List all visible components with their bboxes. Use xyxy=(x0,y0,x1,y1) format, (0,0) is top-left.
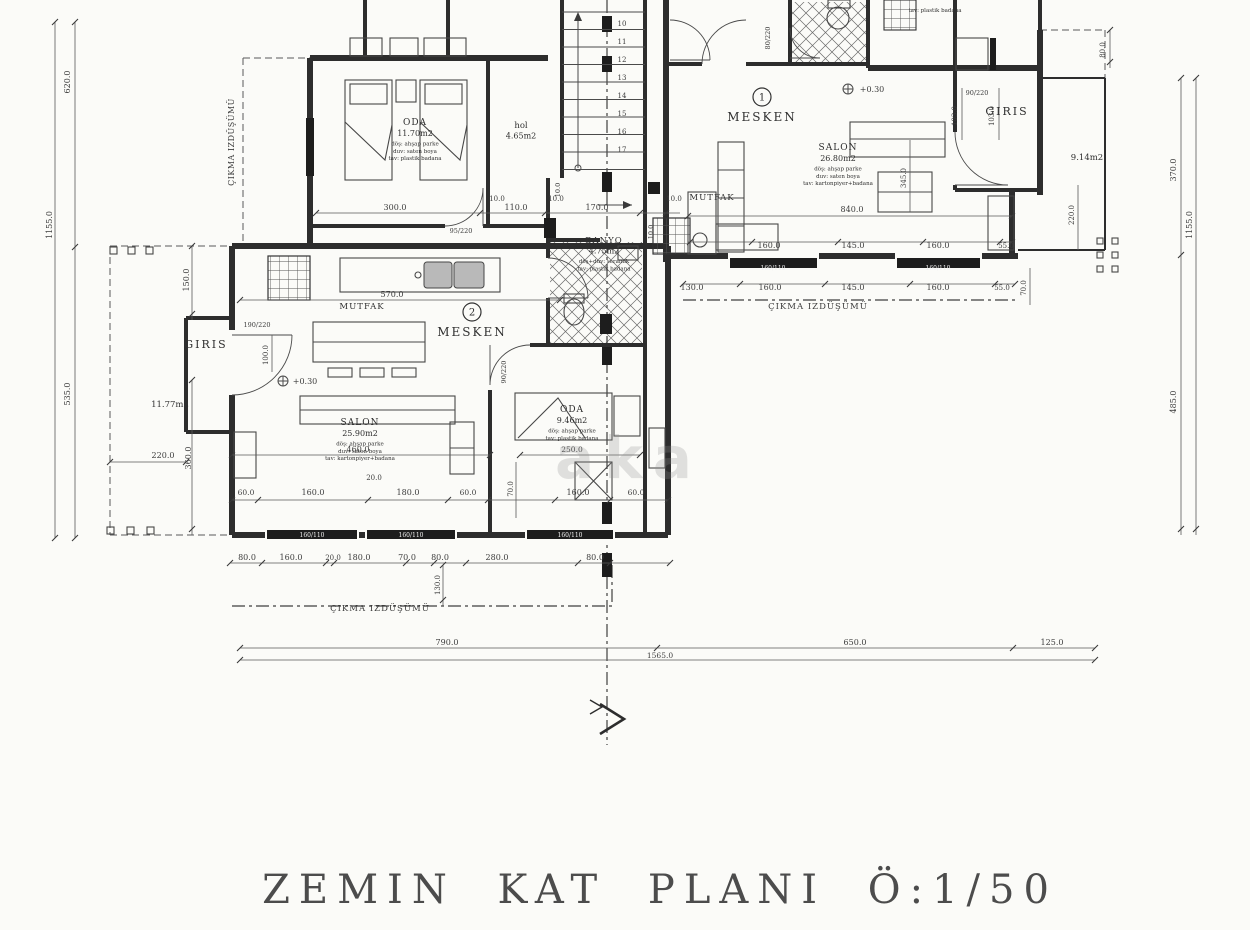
room-label: GIRIS xyxy=(184,338,227,351)
stair-number: 15 xyxy=(618,110,627,118)
window-bar xyxy=(306,118,314,176)
dim-label: 145.0 xyxy=(842,241,865,250)
dim-label: 20.0 xyxy=(325,554,341,562)
room-label: döş: ahşap parke xyxy=(336,442,383,448)
dim-label: 160.0 xyxy=(759,283,782,292)
dim-label: 485.0 xyxy=(1169,391,1178,414)
dim-label: 535.0 xyxy=(63,383,72,406)
dim-label: 220.0 xyxy=(1068,205,1076,225)
stair-number: 17 xyxy=(618,146,627,154)
room-label: hol xyxy=(514,121,528,131)
dim-label: ÇIKMA IZDÜŞÜMÜ xyxy=(768,300,868,312)
room-label: SALON xyxy=(819,143,858,153)
room-label: 11.70m2 xyxy=(397,129,433,138)
dim-label: 10.0 xyxy=(489,195,505,203)
dim-label: 90/220 xyxy=(966,89,989,97)
dim-label: 125.0 xyxy=(1041,638,1064,647)
room-label: döş: ahşap parke xyxy=(814,167,861,173)
dim-label: 160/110 xyxy=(399,532,424,539)
door-threshold xyxy=(544,218,556,238)
dim-label: 790.0 xyxy=(436,638,459,647)
dim-label: 55.0 xyxy=(994,284,1010,292)
dim-label: 220.0 xyxy=(152,451,175,460)
dim-label: 160/110 xyxy=(558,532,583,539)
stair-number: 11 xyxy=(618,38,627,46)
watermark-text: aka xyxy=(555,424,702,492)
level-mark-icon xyxy=(843,84,853,94)
washer-icon xyxy=(600,314,612,334)
dim-label: 10.0 xyxy=(554,183,562,197)
room-label: duv: saten boya xyxy=(338,449,383,455)
dim-label: 80/220 xyxy=(764,27,772,50)
dim-label: 145.0 xyxy=(842,283,865,292)
room-label: tav: plastik badana xyxy=(577,266,631,272)
dim-label: 20.0 xyxy=(366,474,382,482)
dim-label: 80.0 xyxy=(1099,42,1107,58)
dim-label: 160.0 xyxy=(927,241,950,250)
stair-number: 13 xyxy=(618,74,627,82)
room-label: duv: saten boya xyxy=(816,174,861,180)
dim-label: 60.0 xyxy=(460,488,477,497)
room-label: tav: plastik badana xyxy=(908,8,962,14)
banyo-floor-hatch xyxy=(550,242,642,343)
dim-label: 160.0 xyxy=(758,241,781,250)
room-label: tav: kartonpiyer+badana xyxy=(803,181,874,187)
dim-label: 10.0 xyxy=(647,225,655,239)
dim-label: 370.0 xyxy=(1169,159,1178,182)
room-label: 4.75m2 xyxy=(589,246,620,255)
closet-door-bar xyxy=(990,38,996,70)
room-label: tav: plastik badana xyxy=(388,156,442,162)
dim-label: 150.0 xyxy=(182,269,191,292)
floor-plan-sheet: 1011121314151617 xyxy=(0,0,1250,930)
dim-label: 170.0 xyxy=(586,203,609,212)
shower-icon xyxy=(884,0,916,30)
unit-label: MESKEN xyxy=(727,110,797,124)
dim-label: 345.0 xyxy=(900,168,908,188)
dim-label: 160/110 xyxy=(926,265,951,272)
room-label: duv: saten boya xyxy=(393,149,438,155)
dim-label: +0.30 xyxy=(860,85,885,94)
dim-label: 180.0 xyxy=(348,553,371,562)
dim-label: 160.0 xyxy=(927,283,950,292)
stair-number: 16 xyxy=(618,128,627,136)
room-label: ODA xyxy=(560,405,584,415)
dim-label: 60.0 xyxy=(238,488,255,497)
unit-number: 2 xyxy=(469,308,475,319)
dim-label: 620.0 xyxy=(63,71,72,94)
dim-label: 130.0 xyxy=(681,283,704,292)
dim-label: 160/110 xyxy=(300,532,325,539)
sink-icon xyxy=(454,262,484,288)
fridge-icon xyxy=(268,256,310,300)
dim-label: 570.0 xyxy=(381,290,404,299)
stair-number: 12 xyxy=(618,56,627,64)
unit-number: 1 xyxy=(759,93,765,104)
dim-label: 70.0 xyxy=(507,481,515,497)
dim-label: 110.0 xyxy=(505,203,528,212)
dim-label: 55.0 xyxy=(998,242,1014,250)
dim-label: 1155.0 xyxy=(45,211,54,239)
dim-label: 160.0 xyxy=(280,553,303,562)
room-label: BANYO xyxy=(585,236,622,246)
room-label: döş: ahşap parke xyxy=(391,142,438,148)
dim-label: 1565.0 xyxy=(647,651,673,660)
dim-label: 1155.0 xyxy=(1185,211,1194,239)
door-threshold xyxy=(648,182,660,194)
dim-label: 80.0 xyxy=(431,553,449,562)
dim-label: 300.0 xyxy=(384,203,407,212)
dim-label: 10.0 xyxy=(666,195,682,203)
dim-label: 103.0 xyxy=(951,106,959,126)
dim-label: 160.0 xyxy=(302,488,325,497)
room-label: tav: kartonpiyer+badana xyxy=(325,456,396,462)
dim-label: 160/110 xyxy=(761,265,786,272)
dim-label: 95/220 xyxy=(450,227,473,235)
room-label: 26.80m2 xyxy=(820,154,856,163)
room-label: ODA xyxy=(403,118,427,128)
stair-number: 10 xyxy=(618,20,627,28)
stove-icon xyxy=(653,218,690,254)
room-label: 4.65m2 xyxy=(506,131,537,140)
floor-plan-drawing: 1011121314151617 xyxy=(0,0,1250,930)
dim-label: +0.30 xyxy=(293,377,318,386)
dim-label: 70.0 xyxy=(398,553,416,562)
dim-label: ÇIKMA IZDÜŞÜMÜ xyxy=(330,602,430,614)
room-label: 25.90m2 xyxy=(342,429,378,438)
room-label: 11.77m2 xyxy=(151,400,189,410)
room-label: 9.14m2 xyxy=(1071,153,1103,163)
unit-label: MESKEN xyxy=(437,325,507,339)
sink-icon xyxy=(424,262,452,288)
room-label: MUTFAK xyxy=(689,193,734,203)
dim-label: 280.0 xyxy=(486,553,509,562)
dim-label: 80.0 xyxy=(586,553,604,562)
dim-label: 90/220 xyxy=(500,361,508,384)
dim-label: 130.0 xyxy=(434,575,442,595)
dim-label: 100.0 xyxy=(262,345,270,365)
dim-label: 180.0 xyxy=(397,488,420,497)
dim-label: 650.0 xyxy=(844,638,867,647)
dim-label: 840.0 xyxy=(841,205,864,214)
dim-label: 190/220 xyxy=(243,321,270,329)
dim-label: 70.0 xyxy=(1020,280,1028,296)
dim-label: ÇIKMA IZDÜŞÜMÜ xyxy=(227,98,236,186)
level-mark-icon xyxy=(278,376,288,386)
stair-number: 14 xyxy=(618,92,627,100)
room-label: MUTFAK xyxy=(339,302,384,312)
dim-label: 360.0 xyxy=(184,447,193,470)
room-label: döş+duv: seramik xyxy=(579,259,630,265)
room-label: GIRIS xyxy=(985,105,1028,118)
room-label: SALON xyxy=(341,418,380,428)
dim-label: 80.0 xyxy=(238,553,256,562)
page-title: ZEMIN KAT PLANI Ö:1/50 xyxy=(262,866,1058,913)
